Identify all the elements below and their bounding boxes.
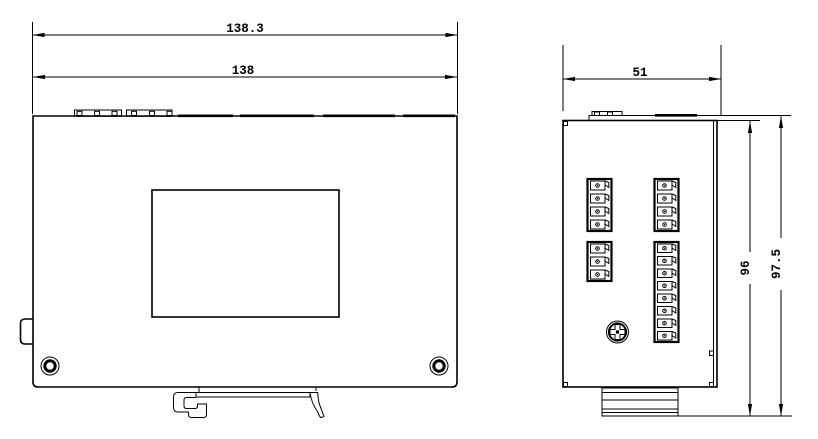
arrowhead: [446, 33, 458, 37]
engineering-drawing: 138.3 138: [0, 0, 818, 439]
arrowhead: [33, 33, 45, 37]
side-body-outline: [563, 121, 717, 388]
din-clip-hook: [174, 387, 207, 418]
dimension-text: 96: [739, 260, 753, 275]
arrowhead: [445, 75, 457, 79]
wire-clamp-notch: [672, 307, 676, 314]
arrowhead: [563, 77, 575, 81]
wire-clamp-notch: [605, 220, 609, 227]
drawing-canvas: 138.3 138: [0, 0, 818, 439]
dimension-text: 138: [232, 64, 255, 78]
wire-clamp-notch: [605, 207, 609, 214]
wire-clamp-notch: [605, 181, 609, 188]
dimension-side-depth: 51: [563, 45, 721, 116]
dimension-text: 138.3: [226, 22, 264, 36]
wire-clamp-notch: [672, 207, 676, 214]
din-rail-clip: [174, 387, 325, 418]
arrowhead: [748, 404, 752, 416]
wire-clamp-notch: [672, 332, 676, 339]
dimension-side-overall-height: 97.5: [770, 116, 784, 416]
wire-clamp-notch: [605, 194, 609, 201]
corner-notch: [564, 383, 568, 387]
dimension-side-body-height: 96: [739, 121, 753, 416]
wire-clamp-notch: [672, 282, 676, 289]
wire-clamp-notch: [672, 220, 676, 227]
terminal-block-1: [588, 179, 612, 231]
display-window: [152, 190, 339, 317]
terminal-block-2: [655, 179, 679, 231]
wire-clamp-notch: [672, 181, 676, 188]
wire-clamp-notch: [672, 244, 676, 251]
arrowhead: [779, 404, 783, 416]
front-view: 138.3 138: [21, 22, 458, 418]
wire-clamp-notch: [605, 244, 609, 251]
phillips-screw: [607, 321, 629, 343]
arrowhead: [709, 77, 721, 81]
terminal-blocks: [588, 179, 679, 342]
dimension-text: 97.5: [770, 249, 784, 279]
dimension-front-body-width: 138: [33, 64, 457, 79]
wire-clamp-notch: [605, 270, 609, 277]
top-lip: [589, 112, 791, 121]
wire-clamp-notch: [672, 269, 676, 276]
side-panel-bump: [21, 319, 34, 344]
arrowhead: [779, 116, 783, 128]
corner-notch: [564, 122, 568, 126]
arrowhead: [748, 121, 752, 133]
top-terminal-strip-left: [75, 110, 122, 116]
arrowhead: [33, 75, 45, 79]
wire-clamp-notch: [672, 294, 676, 301]
wire-clamp-notch: [672, 319, 676, 326]
front-body-outline: [33, 116, 457, 387]
din-rail-side: [602, 388, 792, 416]
din-clip-claw: [310, 387, 324, 417]
wire-clamp-notch: [672, 194, 676, 201]
wire-clamp-notch: [605, 257, 609, 264]
dimension-text: 51: [632, 66, 647, 80]
terminal-block-4: [655, 242, 679, 342]
edge-notch: [710, 351, 714, 356]
corner-notch: [710, 383, 714, 387]
side-view: 51: [563, 45, 792, 416]
terminal-block-3: [588, 242, 612, 281]
mounting-screw-left: [41, 357, 59, 375]
wire-clamp-notch: [672, 257, 676, 264]
din-clip-bar: [196, 393, 310, 398]
mounting-screw-right: [430, 357, 448, 375]
